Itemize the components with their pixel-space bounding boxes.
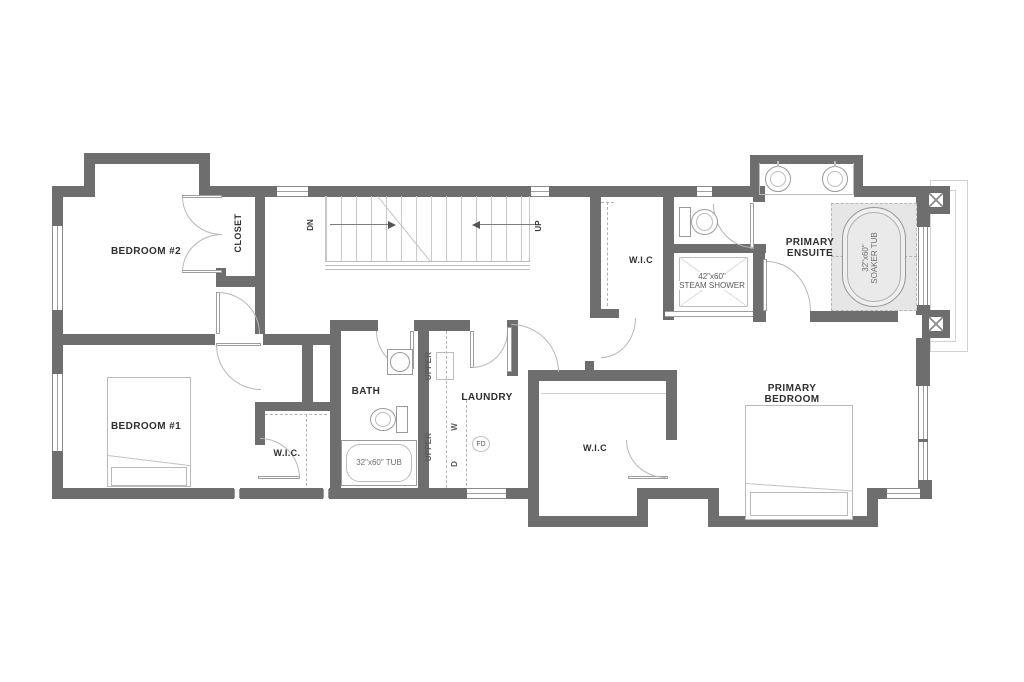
- stair-dn-label: DN: [306, 213, 318, 237]
- soaker-tub-size: 32"x60": [861, 244, 870, 271]
- wall: [663, 186, 674, 320]
- window: [531, 186, 549, 197]
- wall: [528, 381, 539, 488]
- dryer-label: D: [450, 456, 460, 472]
- faucet-icon: [777, 161, 779, 167]
- laundry-sink: [436, 352, 454, 380]
- wall: [810, 311, 898, 322]
- wall: [341, 320, 378, 331]
- window: [52, 374, 63, 451]
- window: [277, 186, 308, 197]
- room-label-wic-primary: W.I.C: [560, 443, 630, 454]
- door-arc: [182, 197, 222, 235]
- wall: [255, 402, 330, 411]
- upper-cabinet-label: UPPER: [424, 425, 434, 469]
- post-x-icon: [929, 317, 943, 331]
- wall: [712, 186, 753, 197]
- wall: [854, 155, 863, 197]
- bathtub-size: 32"x60" TUB: [355, 458, 403, 467]
- door-arc: [626, 440, 666, 478]
- closet-shelf-line: [601, 202, 614, 203]
- wall: [590, 186, 601, 309]
- wall: [753, 311, 766, 322]
- room-label-primary-bedroom: PRIMARY BEDROOM: [742, 383, 842, 405]
- wall: [240, 488, 323, 499]
- steam-shower-name: STEAM SHOWER: [678, 281, 746, 290]
- room-label-bedroom1: BEDROOM #1: [76, 421, 216, 432]
- closet-shelf-line: [541, 381, 666, 394]
- upper-cabinet-label: UPPER: [424, 344, 434, 388]
- wall: [590, 309, 619, 318]
- wall: [263, 334, 330, 345]
- bathtub-label: 32"x60" TUB: [344, 458, 414, 467]
- window: [697, 186, 712, 197]
- steam-shower-size: 42"x60": [697, 272, 726, 281]
- wall: [867, 488, 878, 527]
- wall: [52, 488, 234, 499]
- wall: [506, 488, 530, 499]
- wall: [878, 488, 887, 499]
- wall: [637, 488, 648, 527]
- wall: [916, 338, 930, 386]
- door-arc: [216, 345, 261, 390]
- closet-shelf-line: [607, 202, 608, 306]
- door-arc: [511, 324, 559, 372]
- wall: [863, 186, 930, 197]
- door-arc: [713, 204, 753, 248]
- toilet-bowl: [375, 412, 391, 427]
- wall: [549, 186, 697, 197]
- stair-dn-arrow-line: [330, 224, 388, 225]
- wall: [414, 320, 429, 331]
- wall: [528, 516, 648, 527]
- post-x-icon: [929, 193, 943, 207]
- wall: [329, 488, 467, 499]
- appliance-line: [466, 400, 467, 486]
- faucet-icon: [834, 161, 836, 167]
- wall: [918, 480, 932, 488]
- sink-icon: [390, 352, 410, 372]
- window: [887, 488, 920, 499]
- room-label-laundry: LAUNDRY: [447, 392, 527, 403]
- toilet-bowl: [696, 213, 713, 231]
- wall: [52, 334, 215, 345]
- door-arc: [472, 331, 508, 368]
- steam-shower-label: 42"x60"STEAM SHOWER: [671, 272, 753, 290]
- soaker-tub-name: SOAKER TUB: [870, 232, 879, 283]
- wall: [84, 153, 210, 164]
- door-arc: [767, 261, 811, 311]
- stair-up-arrow-line: [480, 224, 537, 225]
- room-label-primary-ensuite: PRIMARY ENSUITE: [770, 237, 850, 259]
- stair-up-label: UP: [534, 214, 546, 238]
- bed-pillow: [111, 467, 187, 486]
- toilet-tank: [679, 207, 691, 237]
- toilet-tank: [396, 406, 408, 433]
- window: [918, 386, 928, 439]
- staircase: [325, 196, 530, 261]
- room-label-wic-ensuite: W.I.C: [606, 255, 676, 266]
- room-label-bedroom2: BEDROOM #2: [76, 246, 216, 257]
- soaker-tub-label: 32"x60"SOAKER TUB: [861, 213, 887, 303]
- wall: [648, 488, 708, 499]
- wall: [666, 370, 677, 440]
- window: [918, 227, 928, 305]
- wall: [302, 334, 313, 411]
- shower-glass-door[interactable]: [665, 311, 753, 317]
- floor-drain-label: FD: [472, 440, 490, 449]
- window: [467, 488, 506, 499]
- sink-basin: [827, 171, 843, 187]
- closet-shelf-line: [265, 414, 327, 415]
- door-arc: [218, 292, 260, 334]
- stair-up-arrowhead-icon: [472, 221, 480, 229]
- stair-dn-arrowhead-icon: [388, 221, 396, 229]
- floor-plan: DN UP 42"x60"STEAM SHOWER: [0, 0, 1024, 682]
- stair-edge-line: [325, 265, 530, 266]
- wall: [920, 488, 932, 499]
- stair-edge-line: [325, 261, 530, 262]
- wall: [255, 186, 265, 334]
- door-arc: [601, 318, 636, 358]
- stair-edge-line: [325, 269, 530, 270]
- room-label-bath: BATH: [336, 386, 396, 397]
- wall: [52, 186, 63, 226]
- wall: [330, 320, 341, 488]
- sink-basin: [770, 171, 786, 187]
- window: [52, 226, 63, 310]
- wall: [429, 320, 470, 331]
- bed-pillow: [750, 492, 848, 516]
- washer-label: W: [450, 419, 460, 435]
- room-label-wic-bedroom1: W.I.C.: [252, 448, 322, 459]
- window: [918, 442, 928, 480]
- room-label-closet: CLOSET: [233, 203, 247, 263]
